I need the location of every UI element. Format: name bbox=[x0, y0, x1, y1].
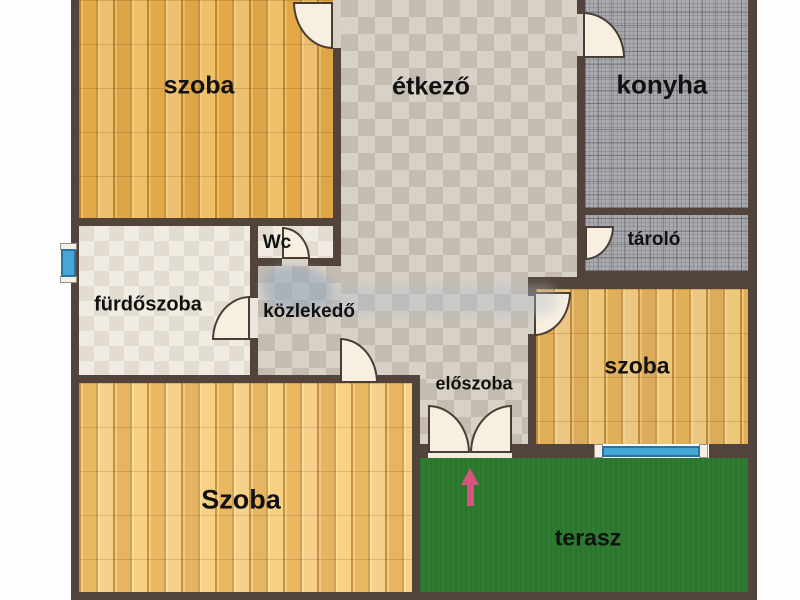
wall-terrace-top-1 bbox=[412, 444, 428, 458]
wall-outer-left bbox=[71, 0, 79, 600]
wall-room1-bath bbox=[71, 218, 341, 226]
window-bathroom bbox=[61, 249, 76, 277]
wall-outer-right bbox=[748, 0, 757, 600]
window-terrace-cap bbox=[699, 444, 708, 458]
room-label-kitchen: konyha bbox=[616, 70, 707, 101]
room-label-bathroom: fürdőszoba bbox=[94, 294, 202, 317]
room-label-storage: tároló bbox=[628, 229, 681, 251]
wall-room3-terrace bbox=[412, 375, 420, 600]
room-label-hallway: közlekedő bbox=[263, 301, 355, 323]
wall-terrace-top-3 bbox=[709, 444, 756, 458]
wall-wc-bottom-2 bbox=[308, 258, 341, 266]
room-label-terrace: terasz bbox=[555, 525, 621, 552]
wall-room1-dining bbox=[333, 48, 341, 265]
wall-room2-left-2 bbox=[528, 334, 536, 444]
room-label-bottom: Szoba bbox=[201, 485, 281, 516]
wall-dining-kitchen bbox=[577, 56, 585, 289]
arrow-head bbox=[461, 468, 479, 485]
window-room-right bbox=[602, 446, 700, 457]
door-opening bbox=[250, 298, 258, 338]
floor-dining bbox=[341, 0, 577, 277]
window-left-cap bbox=[60, 276, 77, 283]
wall-storage-room2 bbox=[577, 271, 748, 289]
wall-kitchen-storage bbox=[585, 208, 748, 215]
room-label-wc: Wc bbox=[263, 232, 292, 254]
arrow-shaft bbox=[467, 484, 474, 506]
entrance-arrow-icon bbox=[458, 468, 482, 508]
wall-terrace-top-2 bbox=[512, 444, 594, 458]
floor-plan: szoba étkező konyha tároló Wc fürdőszoba… bbox=[0, 0, 800, 600]
door-opening bbox=[333, 0, 341, 48]
door-opening bbox=[282, 258, 308, 266]
wall-wc-bottom-1 bbox=[250, 258, 282, 266]
room-label-dining: étkező bbox=[392, 73, 470, 102]
wall-room2-top-left bbox=[528, 277, 577, 289]
floor-room-top-left bbox=[79, 0, 333, 218]
room-label-top-left: szoba bbox=[164, 72, 235, 101]
wall-hall-room3-1 bbox=[71, 375, 342, 383]
room-label-entry: előszoba bbox=[435, 374, 512, 395]
room-label-right: szoba bbox=[604, 353, 669, 380]
